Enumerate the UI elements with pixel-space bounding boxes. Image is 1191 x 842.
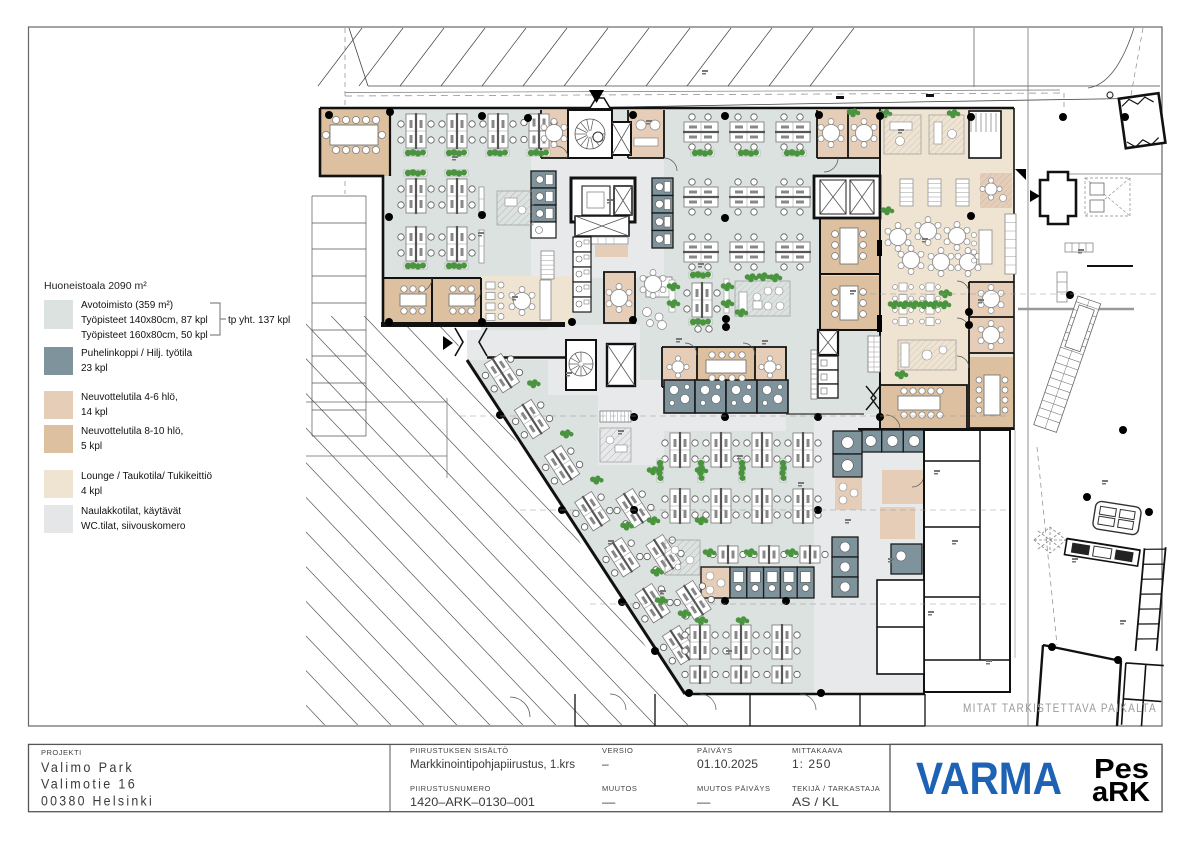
svg-text:Valimo Park: Valimo Park — [41, 759, 134, 775]
svg-text:MITAT TARKISTETTAVA PAIKALTA: MITAT TARKISTETTAVA PAIKALTA — [963, 703, 1157, 715]
svg-text:MUUTOS PÄIVÄYS: MUUTOS PÄIVÄYS — [697, 784, 771, 793]
svg-text:Puhelinkoppi / Hilj. työtila: Puhelinkoppi / Hilj. työtila — [81, 348, 193, 359]
svg-text:TEKIJÄ / TARKASTAJA: TEKIJÄ / TARKASTAJA — [792, 784, 880, 793]
svg-text:1: 250: 1: 250 — [792, 757, 831, 771]
svg-text:Huoneistoala 2090 m²: Huoneistoala 2090 m² — [44, 280, 147, 292]
svg-text:MITTAKAAVA: MITTAKAAVA — [792, 746, 843, 755]
svg-text:PIIRUSTUSNUMERO: PIIRUSTUSNUMERO — [410, 784, 491, 793]
svg-text:PÄIVÄYS: PÄIVÄYS — [697, 746, 733, 755]
svg-text:00380 Helsinki: 00380 Helsinki — [41, 793, 154, 809]
svg-text:4 kpl: 4 kpl — [81, 486, 102, 497]
svg-text:Valimotie 16: Valimotie 16 — [41, 776, 137, 792]
svg-text:14 kpl: 14 kpl — [81, 407, 108, 418]
svg-text:Työpisteet 160x80cm, 50 kpl: Työpisteet 160x80cm, 50 kpl — [81, 330, 208, 341]
svg-text:–: – — [602, 757, 609, 771]
svg-text:23 kpl: 23 kpl — [81, 363, 108, 374]
svg-text:5 kpl: 5 kpl — [81, 441, 102, 452]
svg-text:01.10.2025: 01.10.2025 — [697, 757, 758, 771]
svg-text:––: –– — [697, 795, 711, 809]
svg-text:––: –– — [602, 795, 616, 809]
svg-text:Neuvottelutila 8-10 hlö,: Neuvottelutila 8-10 hlö, — [81, 426, 183, 437]
svg-text:Työpisteet 140x80cm, 87 kpl: Työpisteet 140x80cm, 87 kpl — [81, 315, 208, 326]
svg-text:AS / KL: AS / KL — [792, 795, 839, 809]
svg-text:tp yht. 137 kpl: tp yht. 137 kpl — [228, 315, 290, 326]
svg-text:WC.tilat, siivouskomero: WC.tilat, siivouskomero — [81, 521, 186, 532]
svg-text:MUUTOS: MUUTOS — [602, 784, 637, 793]
svg-text:Neuvottelutila 4-6 hlö,: Neuvottelutila 4-6 hlö, — [81, 392, 178, 403]
svg-text:1420–ARK–0130–001: 1420–ARK–0130–001 — [410, 795, 535, 809]
svg-text:Naulakkotilat, käytävät: Naulakkotilat, käytävät — [81, 506, 181, 517]
svg-text:VARMA: VARMA — [916, 753, 1062, 804]
svg-text:PIIRUSTUKSEN SISÄLTÖ: PIIRUSTUKSEN SISÄLTÖ — [410, 746, 509, 755]
svg-text:Avotoimisto (359 m²): Avotoimisto (359 m²) — [81, 300, 173, 311]
svg-text:Lounge / Taukotila/ Tukikeitti: Lounge / Taukotila/ Tukikeittiö — [81, 471, 212, 482]
svg-text:Markkinointipohjapiirustus, 1.: Markkinointipohjapiirustus, 1.krs — [410, 759, 575, 771]
svg-text:VERSIO: VERSIO — [602, 746, 633, 755]
svg-text:PROJEKTI: PROJEKTI — [41, 748, 82, 757]
svg-text:aRK: aRK — [1092, 776, 1150, 807]
